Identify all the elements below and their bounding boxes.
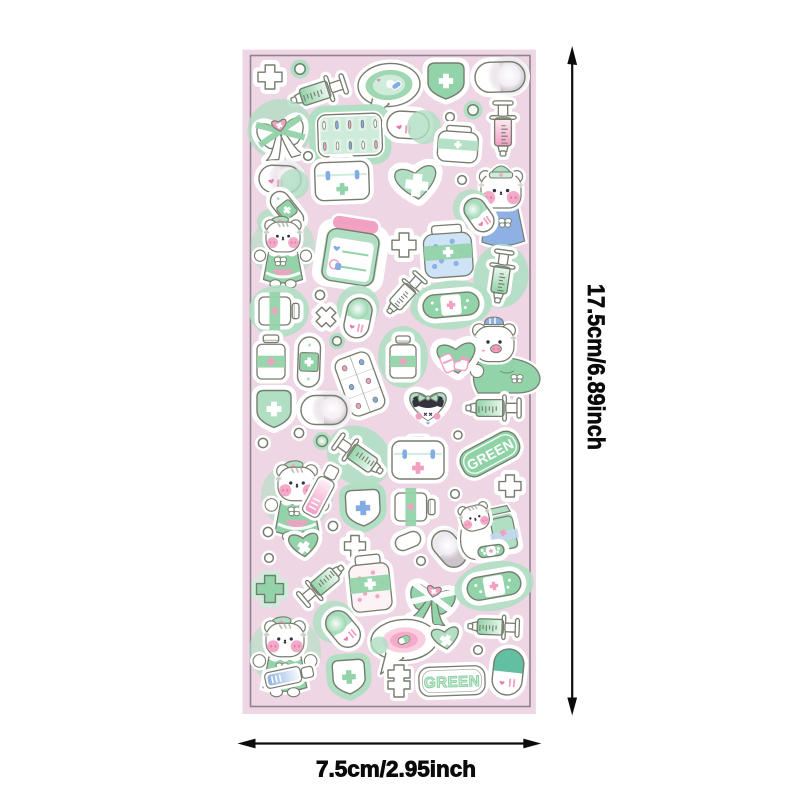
svg-text:GREEN: GREEN [424, 673, 481, 692]
svg-text:7.5cm/2.95inch: 7.5cm/2.95inch [316, 757, 476, 782]
svg-text:17.5cm/6.89inch: 17.5cm/6.89inch [582, 284, 609, 450]
